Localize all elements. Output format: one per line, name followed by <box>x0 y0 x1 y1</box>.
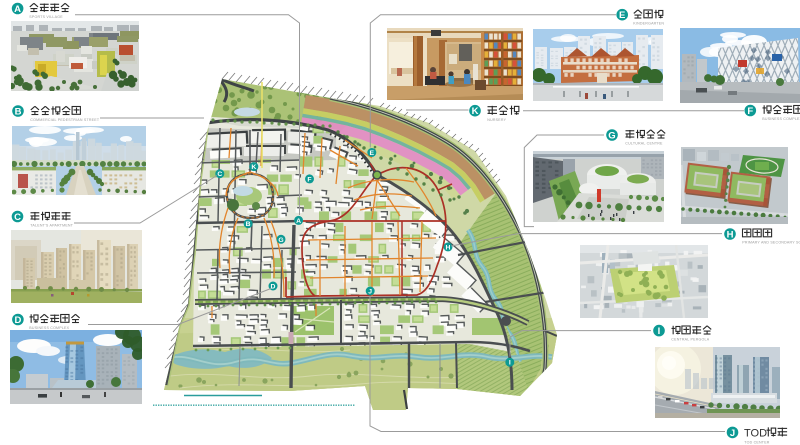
svg-text:H: H <box>446 244 451 251</box>
svg-text:E: E <box>619 10 625 21</box>
svg-text:TALENT'S APARTMENT: TALENT'S APARTMENT <box>30 223 73 227</box>
svg-text:C: C <box>217 171 222 178</box>
svg-text:E: E <box>370 150 375 157</box>
svg-text:H: H <box>727 229 734 240</box>
svg-text:G: G <box>278 237 283 244</box>
svg-text:COMMERCIAL PEDESTRIAN STREET: COMMERCIAL PEDESTRIAN STREET <box>30 118 100 122</box>
svg-text:A: A <box>14 4 21 15</box>
svg-text:I: I <box>658 326 661 337</box>
svg-text:D: D <box>271 284 276 291</box>
svg-text:C: C <box>14 212 21 223</box>
svg-text:B: B <box>246 221 251 228</box>
svg-text:CENTRAL PERGOLA: CENTRAL PERGOLA <box>671 337 709 341</box>
svg-text:I: I <box>509 360 511 367</box>
svg-text:A: A <box>296 218 301 225</box>
svg-text:BUSINESS COMPLEX: BUSINESS COMPLEX <box>29 326 69 330</box>
svg-text:BUSINESS COMPLEX: BUSINESS COMPLEX <box>762 117 800 121</box>
svg-text:SPORTS VILLAGE: SPORTS VILLAGE <box>29 15 63 19</box>
svg-text:KINDERGARTEN: KINDERGARTEN <box>633 21 664 25</box>
svg-text:TOD: TOD <box>744 428 767 440</box>
svg-text:K: K <box>251 164 256 171</box>
svg-text:CULTURAL CENTRE: CULTURAL CENTRE <box>625 141 663 145</box>
svg-text:J: J <box>368 289 372 296</box>
svg-text:TOD CENTER: TOD CENTER <box>744 441 769 445</box>
svg-text:D: D <box>14 315 21 326</box>
svg-text:F: F <box>307 176 311 183</box>
svg-text:J: J <box>730 428 735 439</box>
svg-text:K: K <box>472 106 479 117</box>
svg-text:G: G <box>608 130 615 141</box>
svg-text:B: B <box>15 106 22 117</box>
svg-text:NURSERY: NURSERY <box>487 118 506 122</box>
svg-text:PRIMARY AND SECONDARY SCH: PRIMARY AND SECONDARY SCH <box>742 240 800 244</box>
svg-text:F: F <box>747 106 753 117</box>
